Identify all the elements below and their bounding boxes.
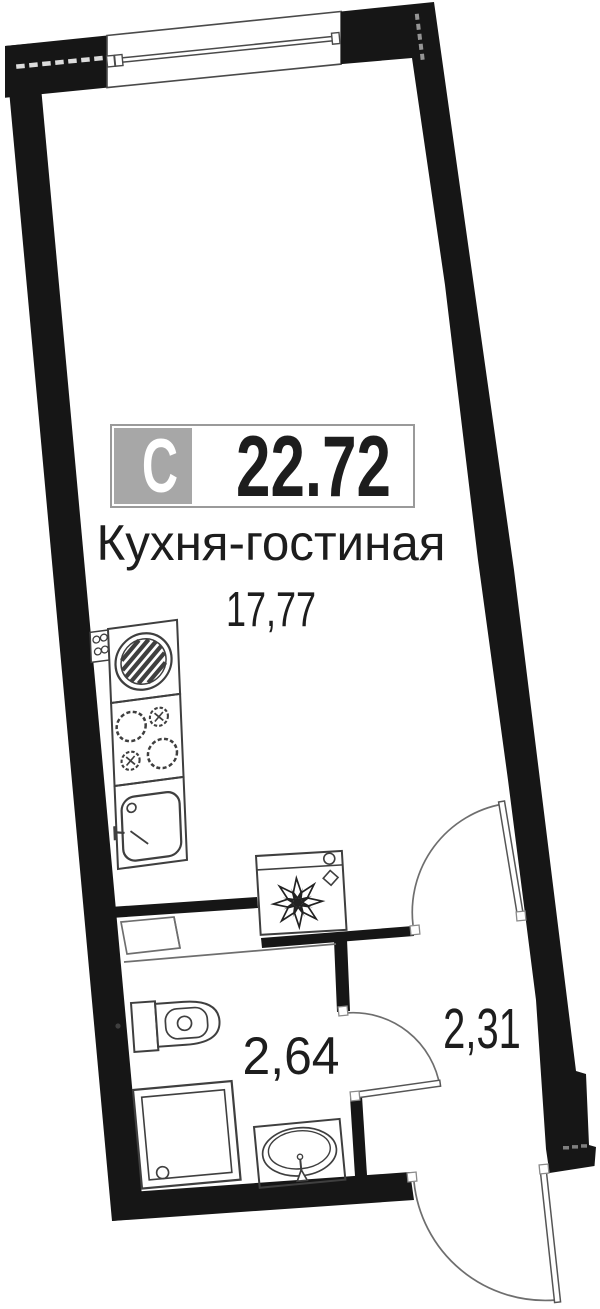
svg-text:2,31: 2,31 [443, 997, 521, 1061]
svg-text:22.72: 22.72 [236, 418, 391, 514]
svg-text:17,77: 17,77 [226, 583, 316, 638]
svg-text:С: С [142, 424, 178, 509]
svg-text:2,64: 2,64 [243, 1026, 340, 1086]
svg-text:Кухня-гостиная: Кухня-гостиная [96, 515, 445, 571]
